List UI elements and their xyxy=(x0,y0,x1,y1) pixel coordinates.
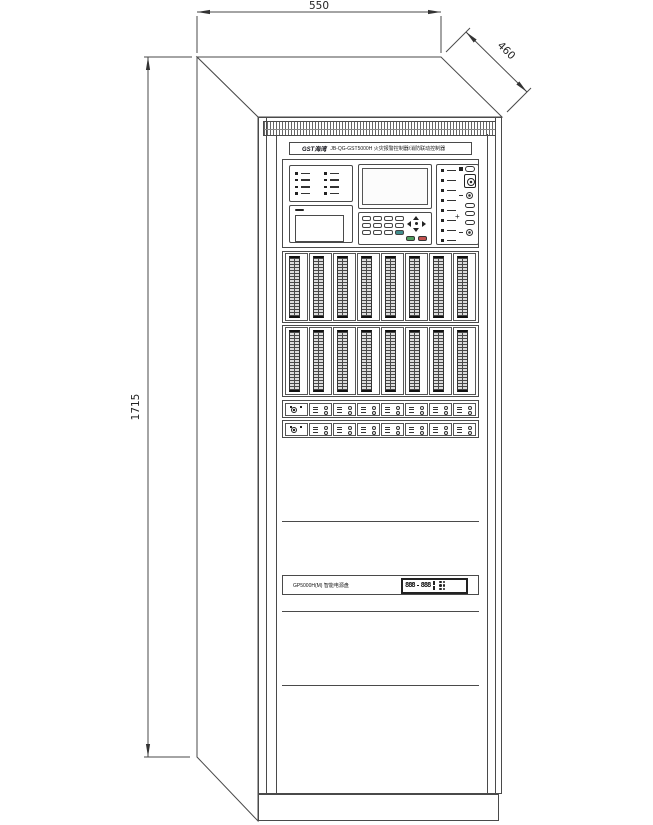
relay-label-lines xyxy=(313,427,318,433)
keypad-panel xyxy=(358,212,432,245)
numeric-keypad xyxy=(362,216,404,235)
loop-card-module xyxy=(357,253,380,321)
power-supply-label: GP5000H(M) 智能电源盘 xyxy=(293,582,349,589)
relay-module xyxy=(405,423,428,436)
keypad-key[interactable] xyxy=(362,223,371,228)
tick-mark xyxy=(459,232,463,233)
status-led-row xyxy=(441,239,456,242)
dimension-width-value: 550 xyxy=(309,0,329,12)
relay-module xyxy=(333,423,356,436)
loop-card-module xyxy=(309,253,332,321)
loop-card-module xyxy=(309,327,332,395)
display-separator xyxy=(417,585,419,586)
arrow-right-icon[interactable] xyxy=(422,221,426,227)
keypad-key[interactable] xyxy=(395,216,404,221)
panel-divider xyxy=(282,521,479,522)
arrow-up-icon[interactable] xyxy=(413,216,419,220)
status-led-row xyxy=(441,199,456,202)
led-indicator-icon xyxy=(295,179,298,182)
led-indicator-icon xyxy=(295,172,298,175)
dimension-width: 550 xyxy=(197,0,441,53)
status-led-row xyxy=(295,177,318,184)
led-label xyxy=(447,230,456,232)
psu-button-icon[interactable] xyxy=(439,581,442,584)
lcd-panel xyxy=(358,164,432,209)
led-indicator-icon xyxy=(324,192,327,195)
status-led-row xyxy=(295,170,318,177)
status-led-row xyxy=(295,190,318,197)
screw-icon xyxy=(300,426,302,428)
tick-mark xyxy=(459,195,463,196)
led-label xyxy=(447,200,456,202)
relay-label-lines xyxy=(457,407,462,413)
led-label xyxy=(301,193,310,195)
loop-card-module xyxy=(429,253,452,321)
knob-icon[interactable] xyxy=(291,427,297,433)
status-led-row xyxy=(324,177,347,184)
relay-module-row xyxy=(282,420,479,438)
relay-led-icons xyxy=(324,406,328,415)
screw-icon xyxy=(300,406,302,408)
psu-led-bars-icon xyxy=(433,581,435,590)
relay-label-lines xyxy=(433,407,438,413)
status-led-row xyxy=(324,190,347,197)
led-indicator-icon xyxy=(324,179,327,182)
led-indicator-icon xyxy=(324,186,327,189)
terminal-strip xyxy=(457,330,468,392)
keypad-key[interactable] xyxy=(384,216,393,221)
led-indicator-icon xyxy=(324,172,327,175)
mute-button[interactable] xyxy=(465,166,475,172)
knob-icon[interactable] xyxy=(291,407,297,413)
relay-module xyxy=(309,403,332,416)
operation-panel: + xyxy=(436,164,479,245)
loop-card-module xyxy=(453,327,476,395)
relay-module xyxy=(333,403,356,416)
status-led-row xyxy=(441,229,456,232)
relay-module xyxy=(357,423,380,436)
ok-button[interactable] xyxy=(415,222,418,225)
loop-card-module xyxy=(429,327,452,395)
psu-button-icon[interactable] xyxy=(443,581,446,584)
led-label xyxy=(447,170,456,172)
led-label xyxy=(301,173,310,175)
relay-label-lines xyxy=(409,427,414,433)
label-sticker xyxy=(459,167,463,171)
terminal-strip xyxy=(313,330,324,392)
keypad-key[interactable] xyxy=(384,230,393,235)
relay-led-icons xyxy=(444,406,448,415)
psu-button-cluster[interactable] xyxy=(439,581,445,591)
terminal-strip xyxy=(361,256,372,318)
led-indicator-icon xyxy=(441,189,444,192)
function-button[interactable] xyxy=(465,211,475,216)
loop-card-row xyxy=(282,251,479,323)
power-supply-display: 888 888 xyxy=(401,578,468,594)
led-indicator-icon xyxy=(295,186,298,189)
relay-led-icons xyxy=(396,406,400,415)
confirm-key[interactable] xyxy=(406,236,415,241)
round-button[interactable] xyxy=(466,192,473,199)
lcd-screen xyxy=(362,168,428,205)
loop-card-module xyxy=(333,253,356,321)
terminal-strip xyxy=(409,330,420,392)
led-label xyxy=(330,173,339,175)
relay-module xyxy=(285,403,308,416)
relay-label-lines xyxy=(433,427,438,433)
led-label xyxy=(447,240,456,242)
psu-button-icon[interactable] xyxy=(439,588,442,591)
navigation-cluster[interactable] xyxy=(407,216,426,232)
brand-logo: GST海湾 xyxy=(302,144,326,153)
status-led-panel xyxy=(289,165,353,202)
relay-led-icons xyxy=(372,426,376,435)
psu-button-icon[interactable] xyxy=(443,588,446,591)
cabinet-side-face xyxy=(197,57,258,821)
relay-module xyxy=(429,403,452,416)
led-indicator-icon xyxy=(441,199,444,202)
led-indicator-icon xyxy=(441,179,444,182)
relay-label-lines xyxy=(385,407,390,413)
relay-label-lines xyxy=(337,407,342,413)
power-supply-unit: GP5000H(M) 智能电源盘 888 888 xyxy=(282,575,479,595)
loop-card-module xyxy=(333,327,356,395)
panel-divider xyxy=(282,685,479,686)
terminal-strip xyxy=(289,256,300,318)
psu-button-icon[interactable] xyxy=(439,584,442,587)
operation-led-column xyxy=(441,169,456,242)
terminal-strip xyxy=(385,330,396,392)
seven-segment-display: 888 xyxy=(405,582,415,589)
relay-led-icons xyxy=(468,406,472,415)
relay-label-lines xyxy=(361,427,366,433)
keypad-key[interactable] xyxy=(395,230,404,235)
keypad-key[interactable] xyxy=(373,216,382,221)
led-indicator-icon xyxy=(441,209,444,212)
secondary-display-panel xyxy=(289,205,353,243)
relay-module xyxy=(357,403,380,416)
status-led-row xyxy=(324,170,347,177)
relay-module xyxy=(405,403,428,416)
relay-led-icons xyxy=(372,406,376,415)
status-led-row xyxy=(295,184,318,191)
loop-card-module xyxy=(285,327,308,395)
terminal-strip xyxy=(385,256,396,318)
led-label xyxy=(301,186,310,188)
relay-led-icons xyxy=(396,426,400,435)
relay-led-icons xyxy=(348,426,352,435)
led-label xyxy=(447,180,456,182)
relay-module xyxy=(285,423,308,436)
led-label xyxy=(330,179,339,181)
terminal-strip xyxy=(433,330,444,392)
relay-module xyxy=(453,423,476,436)
function-button[interactable] xyxy=(465,220,475,225)
led-label xyxy=(301,179,310,181)
relay-led-icons xyxy=(444,426,448,435)
relay-led-icons xyxy=(324,426,328,435)
relay-led-icons xyxy=(468,426,472,435)
loop-card-module xyxy=(357,327,380,395)
ventilation-grille xyxy=(263,121,496,136)
led-indicator-icon xyxy=(441,229,444,232)
relay-label-lines xyxy=(313,407,318,413)
loop-card-module xyxy=(285,253,308,321)
psu-button-icon[interactable] xyxy=(443,584,446,587)
relay-module xyxy=(429,423,452,436)
status-led-row xyxy=(441,189,456,192)
round-button[interactable] xyxy=(466,229,473,236)
led-indicator-icon xyxy=(441,239,444,242)
relay-module xyxy=(381,423,404,436)
function-button[interactable] xyxy=(465,203,475,208)
relay-led-icons xyxy=(348,406,352,415)
led-indicator-icon xyxy=(441,219,444,222)
loop-card-module xyxy=(405,327,428,395)
led-label xyxy=(330,186,339,188)
led-indicator-icon xyxy=(295,192,298,195)
keypad-key[interactable] xyxy=(362,216,371,221)
controller-panel: + xyxy=(282,159,479,248)
led-indicator-icon xyxy=(441,169,444,172)
panel-divider xyxy=(282,611,479,612)
terminal-strip xyxy=(289,330,300,392)
status-led-row xyxy=(324,184,347,191)
terminal-strip xyxy=(409,256,420,318)
status-led-row xyxy=(441,169,456,172)
relay-label-lines xyxy=(337,427,342,433)
terminal-strip xyxy=(433,256,444,318)
reset-key[interactable] xyxy=(418,236,427,241)
relay-led-icons xyxy=(420,406,424,415)
nameplate: GST海湾 JB-QG-GST5000H 火灾报警控制器/消防联动控制器 xyxy=(289,142,472,155)
plus-icon: + xyxy=(455,213,460,221)
secondary-display xyxy=(295,215,344,242)
keypad-key[interactable] xyxy=(395,223,404,228)
keypad-key[interactable] xyxy=(373,230,382,235)
led-label xyxy=(447,190,456,192)
keyhole-icon xyxy=(467,178,475,186)
loop-card-module xyxy=(405,253,428,321)
loop-card-module xyxy=(453,253,476,321)
terminal-strip xyxy=(313,256,324,318)
dimension-depth-value: 460 xyxy=(495,40,518,63)
dimension-height: 1715 xyxy=(130,57,192,757)
relay-module xyxy=(381,403,404,416)
relay-label-lines xyxy=(385,427,390,433)
loop-card-module xyxy=(381,327,404,395)
relay-module xyxy=(309,423,332,436)
seven-segment-display: 888 xyxy=(421,582,431,589)
loop-card-row xyxy=(282,325,479,397)
keypad-key[interactable] xyxy=(362,230,371,235)
status-led-row xyxy=(441,209,456,212)
terminal-strip xyxy=(337,330,348,392)
cabinet-front-face: GST海湾 JB-QG-GST5000H 火灾报警控制器/消防联动控制器 xyxy=(258,117,502,794)
relay-led-icons xyxy=(420,426,424,435)
relay-label-lines xyxy=(457,427,462,433)
key-switch[interactable] xyxy=(464,174,476,188)
cabinet-base-plinth xyxy=(258,794,499,821)
relay-label-lines xyxy=(409,407,414,413)
relay-module xyxy=(453,403,476,416)
keypad-key[interactable] xyxy=(373,223,382,228)
keypad-key[interactable] xyxy=(384,223,393,228)
terminal-strip xyxy=(361,330,372,392)
arrow-down-icon[interactable] xyxy=(413,228,419,232)
led-label xyxy=(330,193,339,195)
status-led-row xyxy=(441,179,456,182)
dimension-height-value: 1715 xyxy=(130,394,142,421)
terminal-strip xyxy=(457,256,468,318)
printer-slot-icon xyxy=(295,209,304,211)
arrow-left-icon[interactable] xyxy=(407,221,411,227)
status-led-row xyxy=(441,219,456,222)
cabinet-dimensional-drawing: 550 460 1715 GST海湾 JB-QG-GST5000H 火灾报警控制… xyxy=(0,0,653,825)
terminal-strip xyxy=(337,256,348,318)
product-title: JB-QG-GST5000H 火灾报警控制器/消防联动控制器 xyxy=(330,145,445,152)
loop-card-module xyxy=(381,253,404,321)
relay-module-row xyxy=(282,400,479,418)
relay-label-lines xyxy=(361,407,366,413)
